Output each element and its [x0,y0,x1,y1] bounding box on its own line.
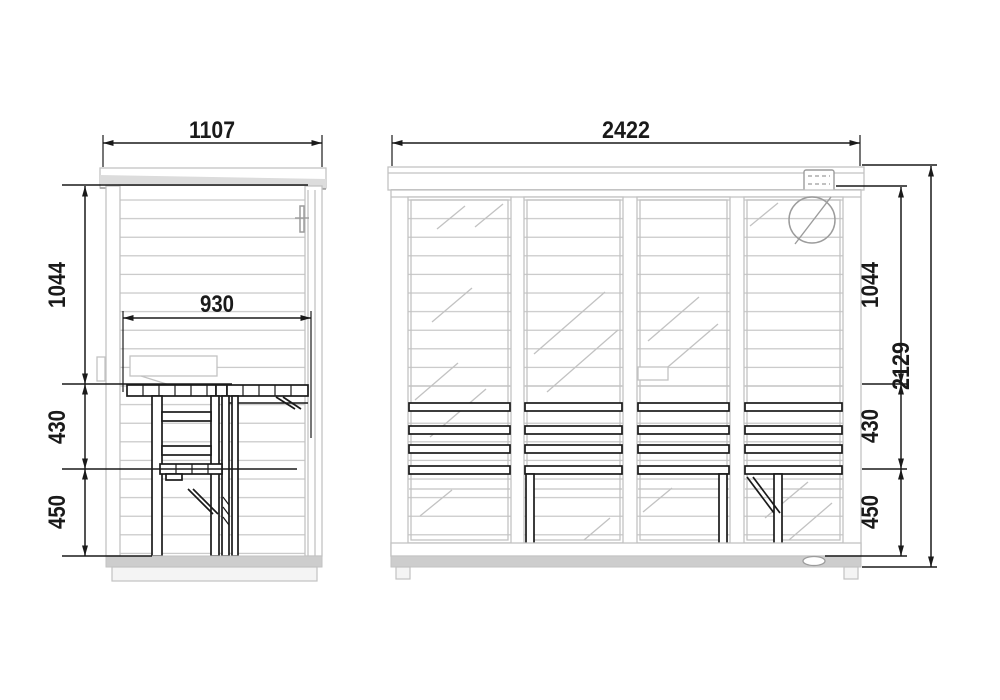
sauna-elevation-drawing: 1107 930 1044 430 450 2422 [0,0,1000,700]
side-elevation-view [97,168,326,581]
dim-front-mid-label: 430 [857,409,884,443]
dim-side-width: 1107 [103,117,322,167]
side-base [106,556,322,581]
front-roof [388,167,864,190]
dim-front-width-label: 2422 [602,117,650,144]
glass-panel-2 [524,197,623,543]
front-roof-vent [804,170,834,191]
front-floor-vent [803,557,825,566]
glass-panel-1 [408,197,511,543]
dim-side-mid-label: 430 [44,410,71,444]
glass-panel-4 [744,197,843,543]
dim-front-upper-label: 1044 [857,261,884,308]
front-elevation-view [388,167,864,579]
dim-front-lower-label: 450 [857,495,884,529]
dim-side-lower-label: 450 [44,495,71,529]
dim-front-width: 2422 [392,117,860,166]
dim-side-interior-width-label: 930 [200,291,234,318]
front-control-box [638,367,668,380]
side-hinge-plate [97,357,105,381]
dim-side-width-label: 1107 [189,117,235,144]
front-base [391,543,861,579]
technical-drawing-canvas: 1107 930 1044 430 450 2422 [0,0,1000,700]
dim-front-total-height-label: 2129 [888,342,915,390]
dim-side-upper-label: 1044 [44,261,71,308]
